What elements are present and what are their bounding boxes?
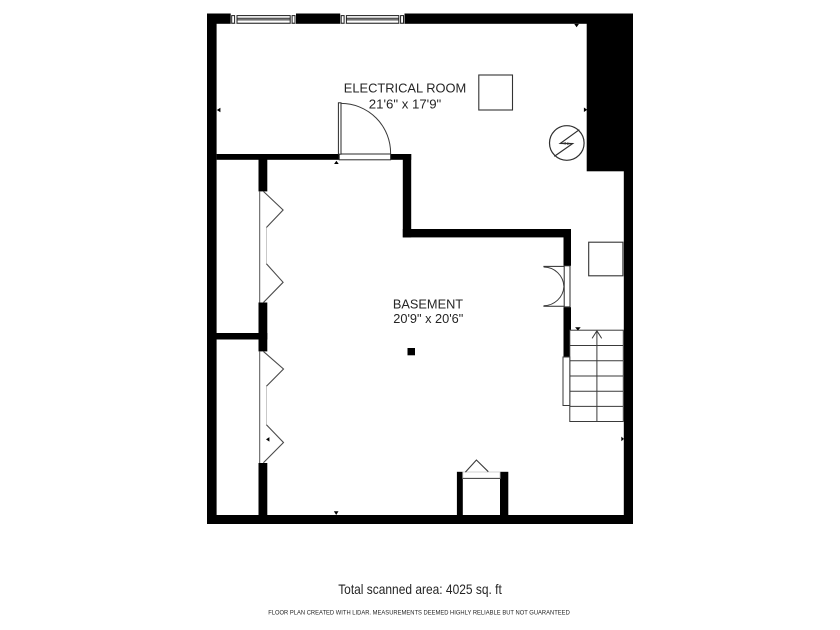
svg-text:21'6" x 17'9": 21'6" x 17'9" [369,96,442,111]
svg-text:Total scanned area: 4025 sq. f: Total scanned area: 4025 sq. ft [338,581,502,597]
svg-text:ELECTRICAL ROOM: ELECTRICAL ROOM [344,82,467,96]
svg-text:20'9" x 20'6": 20'9" x 20'6" [393,311,463,326]
svg-text:FLOOR PLAN CREATED WITH LIDAR.: FLOOR PLAN CREATED WITH LIDAR. MEASUREME… [268,610,570,617]
svg-text:BASEMENT: BASEMENT [393,297,464,311]
